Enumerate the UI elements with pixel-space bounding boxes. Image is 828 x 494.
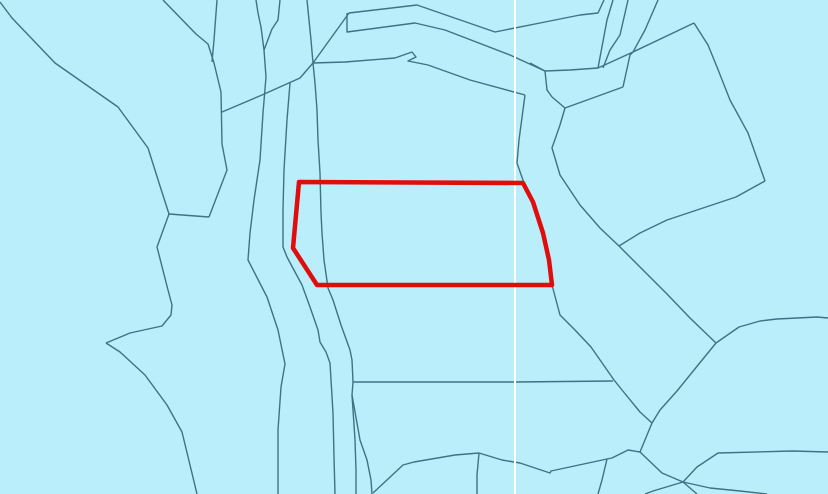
map-canvas[interactable] [0, 0, 828, 494]
map-viewport[interactable] [0, 0, 828, 494]
water-background [0, 0, 828, 494]
